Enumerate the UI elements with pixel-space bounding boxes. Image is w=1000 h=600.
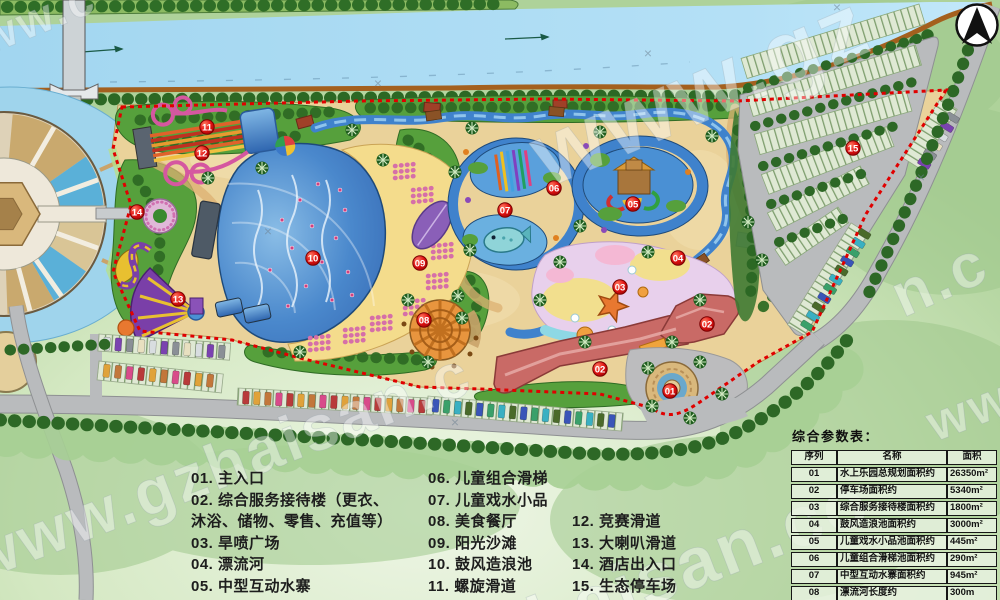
parameters-table-grid: 序列名称面积 01水上乐园总规划面积约26350m²02停车场面积约5340m²… bbox=[791, 448, 997, 600]
table-cell: 945m² bbox=[947, 569, 997, 584]
palm-tree-icon bbox=[642, 246, 655, 259]
palm-tree-icon bbox=[756, 254, 769, 267]
table-cell: 26350m² bbox=[947, 467, 997, 482]
legend-item: 05. 中型互动水寨 bbox=[191, 576, 393, 598]
legend-item: 10. 鼓风造浪池 bbox=[428, 554, 548, 576]
palm-tree-icon bbox=[256, 162, 269, 175]
legend-item: 14. 酒店出入口 bbox=[572, 554, 677, 576]
parked-car bbox=[115, 338, 122, 351]
parked-car bbox=[206, 374, 214, 388]
parked-car bbox=[553, 409, 561, 423]
parked-car bbox=[103, 364, 111, 378]
plan-marker-12: 12 bbox=[195, 146, 209, 160]
table-row: 04鼓风造浪池面积约3000m² bbox=[791, 518, 997, 533]
svg-text:01: 01 bbox=[665, 386, 676, 397]
pool-float bbox=[338, 188, 342, 192]
table-cell: 停车场面积约 bbox=[837, 484, 947, 499]
svg-text:09: 09 bbox=[415, 258, 426, 269]
parked-car bbox=[195, 373, 203, 387]
parked-car bbox=[149, 368, 157, 382]
parked-car bbox=[242, 391, 249, 404]
svg-text:02: 02 bbox=[702, 319, 713, 330]
palm-tree-icon bbox=[534, 294, 547, 307]
legend-item: 13. 大喇叭滑道 bbox=[572, 533, 677, 555]
parked-car bbox=[498, 405, 506, 419]
svg-text:11: 11 bbox=[202, 122, 213, 133]
palm-tree-icon bbox=[694, 356, 707, 369]
palm-tree-icon bbox=[574, 220, 587, 233]
plan-marker-02: 02 bbox=[700, 317, 714, 331]
pool-float bbox=[304, 284, 308, 288]
parked-car bbox=[172, 342, 179, 355]
svg-text:13: 13 bbox=[173, 294, 184, 305]
pool-float bbox=[280, 218, 284, 222]
parked-car bbox=[586, 412, 594, 426]
table-cell: 05 bbox=[791, 535, 837, 550]
legend-item: 沐浴、储物、零售、充值等） bbox=[191, 511, 393, 533]
table-cell: 06 bbox=[791, 552, 837, 567]
legend-item: 09. 阳光沙滩 bbox=[428, 533, 548, 555]
registration-cross: × bbox=[374, 75, 382, 91]
svg-text:14: 14 bbox=[132, 207, 143, 218]
legend-item: 11. 螺旋滑道 bbox=[428, 576, 548, 598]
pool-float bbox=[330, 298, 334, 302]
pool-float bbox=[268, 268, 272, 272]
registration-cross: × bbox=[833, 0, 841, 15]
table-cell: 儿童戏水小品池面积约 bbox=[837, 535, 947, 550]
table-cell: 300m bbox=[947, 586, 997, 600]
svg-text:07: 07 bbox=[500, 205, 511, 216]
parked-car bbox=[542, 409, 550, 423]
parameters-table-title: 综合参数表： bbox=[792, 426, 995, 445]
parked-car bbox=[264, 392, 271, 405]
palm-tree-icon bbox=[449, 166, 462, 179]
palm-tree-icon bbox=[694, 294, 707, 307]
pool-float bbox=[320, 260, 324, 264]
palm-tree-icon bbox=[377, 154, 390, 167]
flower-plaza-dot bbox=[118, 320, 134, 336]
parked-car bbox=[597, 413, 605, 427]
parked-car bbox=[137, 367, 145, 381]
plan-marker-13: 13 bbox=[171, 292, 185, 306]
parked-car bbox=[575, 411, 583, 425]
table-cell: 08 bbox=[791, 586, 837, 600]
palm-tree-icon bbox=[684, 412, 697, 425]
parked-car bbox=[172, 371, 180, 385]
palm-tree-icon bbox=[346, 124, 359, 137]
table-cell: 04 bbox=[791, 518, 837, 533]
parked-car bbox=[183, 372, 191, 386]
legend-item: 07. 儿童戏水小品 bbox=[428, 490, 548, 512]
legend-item: 02. 综合服务接待楼（更衣、 bbox=[191, 490, 393, 512]
table-cell: 07 bbox=[791, 569, 837, 584]
pool-float bbox=[346, 270, 350, 274]
svg-text:02: 02 bbox=[595, 364, 606, 375]
plan-marker-07: 07 bbox=[498, 203, 512, 217]
palm-tree-icon bbox=[646, 400, 659, 413]
table-row: 05儿童戏水小品池面积约445m² bbox=[791, 535, 997, 550]
palm-tree-icon bbox=[202, 172, 215, 185]
parked-car bbox=[531, 408, 539, 422]
table-header: 序列 bbox=[791, 450, 837, 465]
svg-text:05: 05 bbox=[628, 199, 639, 210]
palm-tree-icon bbox=[464, 244, 477, 257]
parameters-table: 综合参数表： 序列名称面积 01水上乐园总规划面积约26350m²02停车场面积… bbox=[791, 426, 995, 600]
table-row: 08漂流河长度约300m bbox=[791, 586, 997, 600]
table-cell: 漂流河长度约 bbox=[837, 586, 947, 600]
palm-tree-icon bbox=[642, 362, 655, 375]
palm-tree-icon bbox=[716, 388, 729, 401]
table-row: 06儿童组合滑梯池面积约290m² bbox=[791, 552, 997, 567]
parked-car bbox=[218, 345, 225, 358]
plan-marker-02: 02 bbox=[593, 362, 607, 376]
parked-car bbox=[608, 414, 616, 428]
table-cell: 儿童组合滑梯池面积约 bbox=[837, 552, 947, 567]
pool-float bbox=[286, 304, 290, 308]
table-cell: 水上乐园总规划面积约 bbox=[837, 467, 947, 482]
svg-text:10: 10 bbox=[308, 253, 319, 264]
legend-item: 01. 主入口 bbox=[191, 468, 393, 490]
plan-marker-01: 01 bbox=[663, 384, 677, 398]
parked-car bbox=[126, 339, 133, 352]
pool-float bbox=[350, 293, 354, 297]
palm-tree-icon bbox=[466, 122, 479, 135]
plan-marker-09: 09 bbox=[413, 256, 427, 270]
svg-text:12: 12 bbox=[197, 148, 208, 159]
parked-car bbox=[126, 366, 134, 380]
legend-item: 12. 竞赛滑道 bbox=[572, 511, 677, 533]
parked-car bbox=[487, 404, 495, 418]
parked-car bbox=[149, 340, 156, 353]
legend-item: 08. 美食餐厅 bbox=[428, 511, 548, 533]
palm-tree-icon bbox=[666, 336, 679, 349]
table-cell: 03 bbox=[791, 501, 837, 516]
parked-car bbox=[138, 339, 145, 352]
plan-marker-08: 08 bbox=[417, 313, 431, 327]
table-cell: 02 bbox=[791, 484, 837, 499]
pool-float bbox=[310, 224, 314, 228]
parked-car bbox=[114, 365, 122, 379]
table-cell: 鼓风造浪池面积约 bbox=[837, 518, 947, 533]
parked-car bbox=[509, 406, 517, 420]
legend-item: 06. 儿童组合滑梯 bbox=[428, 468, 548, 490]
legend-item: 15. 生态停车场 bbox=[572, 576, 677, 598]
table-cell: 中型互动水寨面积约 bbox=[837, 569, 947, 584]
svg-text:15: 15 bbox=[848, 143, 859, 154]
parked-car bbox=[184, 343, 191, 356]
table-cell: 综合服务接待楼面积约 bbox=[837, 501, 947, 516]
table-header: 名称 bbox=[837, 450, 947, 465]
parked-car bbox=[161, 341, 168, 354]
plan-marker-15: 15 bbox=[846, 141, 860, 155]
palm-tree-icon bbox=[554, 256, 567, 269]
legend-column-1: 01. 主入口02. 综合服务接待楼（更衣、沐浴、储物、零售、充值等）03. 旱… bbox=[191, 468, 393, 597]
parked-car bbox=[253, 392, 260, 405]
north-compass bbox=[957, 5, 998, 46]
svg-text:08: 08 bbox=[419, 315, 430, 326]
table-cell: 5340m² bbox=[947, 484, 997, 499]
palm-tree-icon bbox=[294, 346, 307, 359]
parked-car bbox=[520, 407, 528, 421]
palm-tree-icon bbox=[452, 290, 465, 303]
pool-float bbox=[298, 198, 302, 202]
registration-cross: × bbox=[451, 414, 459, 430]
legend-item: 04. 漂流河 bbox=[191, 554, 393, 576]
pool-float bbox=[290, 246, 294, 250]
palm-tree-icon bbox=[742, 216, 755, 229]
table-row: 07中型互动水寨面积约945m² bbox=[791, 569, 997, 584]
table-row: 03综合服务接待楼面积约1800m² bbox=[791, 501, 997, 516]
palm-tree-icon bbox=[402, 294, 415, 307]
table-cell: 445m² bbox=[947, 535, 997, 550]
pool-float bbox=[343, 208, 347, 212]
table-cell: 1800m² bbox=[947, 501, 997, 516]
parked-car bbox=[207, 344, 214, 357]
table-cell: 01 bbox=[791, 467, 837, 482]
registration-cross: × bbox=[644, 45, 652, 61]
palm-tree-icon bbox=[456, 312, 469, 325]
plan-marker-11: 11 bbox=[200, 120, 214, 134]
registration-cross: × bbox=[917, 169, 925, 185]
legend-item: 03. 旱喷广场 bbox=[191, 533, 393, 555]
table-cell: 3000m² bbox=[947, 518, 997, 533]
legend-column-2: 06. 儿童组合滑梯07. 儿童戏水小品08. 美食餐厅09. 阳光沙滩10. … bbox=[428, 468, 548, 597]
plan-marker-03: 03 bbox=[613, 280, 627, 294]
table-row: 02停车场面积约5340m² bbox=[791, 484, 997, 499]
plan-marker-05: 05 bbox=[626, 197, 640, 211]
legend-column-3: 12. 竞赛滑道13. 大喇叭滑道14. 酒店出入口15. 生态停车场 bbox=[572, 511, 677, 597]
svg-text:03: 03 bbox=[615, 282, 626, 293]
palm-tree-icon bbox=[579, 336, 592, 349]
pool-float bbox=[334, 236, 338, 240]
parked-car bbox=[195, 343, 202, 356]
pool-float bbox=[316, 182, 320, 186]
plan-marker-14: 14 bbox=[130, 205, 144, 219]
svg-text:04: 04 bbox=[673, 253, 684, 264]
water-park-master-plan: 01020203040506070809101112131415 ww.cwww… bbox=[0, 0, 1000, 600]
table-cell: 290m² bbox=[947, 552, 997, 567]
parked-car bbox=[564, 410, 572, 424]
plan-marker-10: 10 bbox=[306, 251, 320, 265]
registration-cross: × bbox=[264, 223, 272, 239]
table-row: 01水上乐园总规划面积约26350m² bbox=[791, 467, 997, 482]
plan-marker-04: 04 bbox=[671, 251, 685, 265]
table-header: 面积 bbox=[947, 450, 997, 465]
parked-car bbox=[160, 370, 168, 384]
